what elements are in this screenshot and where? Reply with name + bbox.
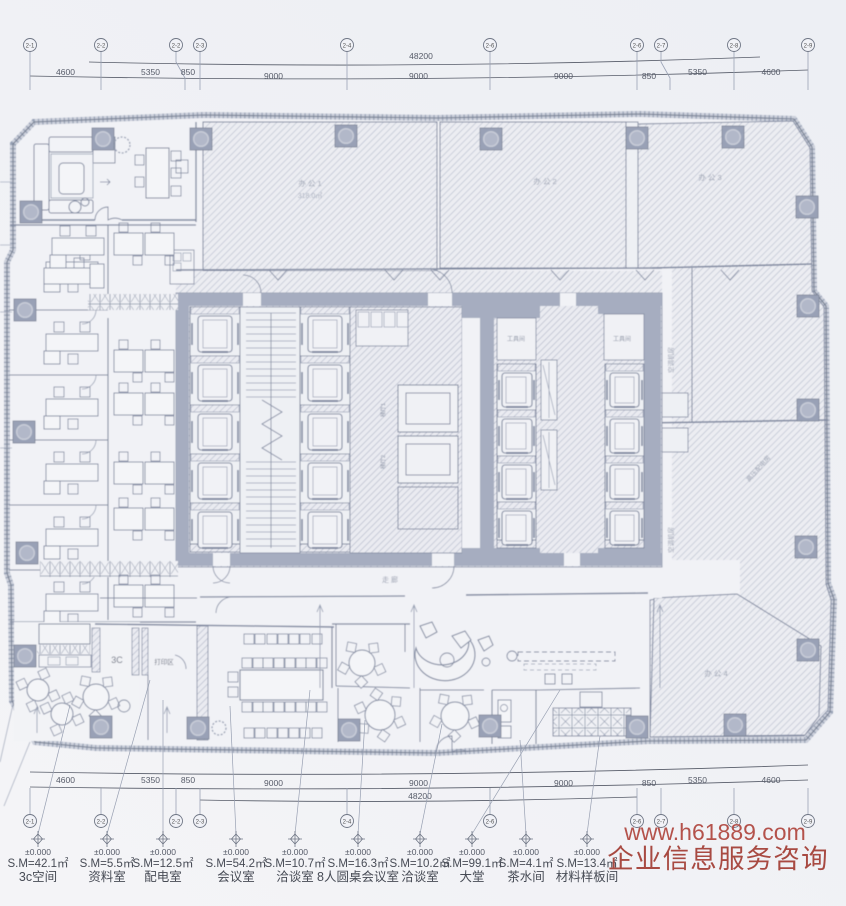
- svg-text:2-2: 2-2: [172, 44, 181, 50]
- svg-text:4600: 4600: [762, 67, 781, 77]
- svg-text:办 公 4: 办 公 4: [704, 668, 727, 678]
- svg-text:大堂: 大堂: [459, 870, 484, 884]
- svg-text:S.M=12.5㎡: S.M=12.5㎡: [132, 857, 194, 870]
- svg-text:工具间: 工具间: [507, 335, 525, 343]
- svg-text:S.M=5.5㎡: S.M=5.5㎡: [80, 857, 135, 870]
- svg-text:配电室: 配电室: [144, 869, 182, 884]
- svg-text:S.M=54.2㎡: S.M=54.2㎡: [205, 857, 267, 870]
- svg-text:±0.000: ±0.000: [513, 847, 539, 857]
- svg-text:办 公 2: 办 公 2: [533, 176, 556, 186]
- svg-text:±0.000: ±0.000: [574, 847, 600, 857]
- svg-text:8人圆桌会议室: 8人圆桌会议室: [317, 869, 399, 884]
- svg-text:企业信息服务咨询: 企业信息服务咨询: [607, 844, 829, 874]
- svg-text:9000: 9000: [554, 71, 573, 81]
- svg-text:4600: 4600: [56, 67, 75, 77]
- svg-text:850: 850: [642, 71, 656, 81]
- svg-text:办 公 3: 办 公 3: [698, 172, 721, 182]
- svg-text:S.M=42.1㎡: S.M=42.1㎡: [7, 857, 69, 870]
- svg-text:850: 850: [642, 778, 656, 788]
- svg-text:±0.000: ±0.000: [345, 847, 371, 857]
- svg-text:空调机房: 空调机房: [666, 347, 675, 373]
- svg-text:5350: 5350: [688, 67, 707, 77]
- svg-text:S.M=16.3㎡: S.M=16.3㎡: [327, 857, 389, 870]
- svg-text:梯厅2: 梯厅2: [379, 455, 387, 469]
- svg-text:2-6: 2-6: [486, 820, 495, 826]
- svg-text:±0.000: ±0.000: [459, 847, 485, 857]
- svg-text:±0.000: ±0.000: [150, 847, 176, 857]
- svg-text:洽谈室: 洽谈室: [401, 869, 439, 884]
- svg-text:4600: 4600: [56, 775, 75, 785]
- svg-text:2-3: 2-3: [196, 44, 205, 50]
- svg-text:S.M=4.1㎡: S.M=4.1㎡: [499, 857, 554, 870]
- svg-text:梯厅1: 梯厅1: [379, 403, 387, 417]
- svg-text:资料室: 资料室: [88, 869, 126, 884]
- svg-text:5350: 5350: [688, 775, 707, 785]
- svg-text:5350: 5350: [141, 775, 160, 785]
- svg-text:2-2: 2-2: [97, 820, 106, 826]
- svg-text:9000: 9000: [264, 71, 283, 81]
- svg-text:2-7: 2-7: [657, 44, 666, 50]
- svg-text:空调机房: 空调机房: [666, 527, 675, 553]
- svg-text:4600: 4600: [762, 775, 781, 785]
- svg-text:±0.000: ±0.000: [25, 847, 51, 857]
- svg-text:S.M=10.7㎡: S.M=10.7㎡: [264, 857, 326, 870]
- svg-text:www.h61889.com: www.h61889.com: [623, 819, 806, 845]
- svg-text:会议室: 会议室: [217, 869, 255, 884]
- svg-text:2-4: 2-4: [343, 820, 352, 826]
- svg-text:2-6: 2-6: [633, 44, 642, 50]
- svg-text:2-1: 2-1: [26, 820, 35, 826]
- svg-text:洽谈室: 洽谈室: [276, 869, 314, 884]
- svg-text:850: 850: [181, 67, 195, 77]
- svg-text:工具间: 工具间: [613, 335, 631, 343]
- svg-text:850: 850: [181, 775, 195, 785]
- svg-text:±0.000: ±0.000: [407, 847, 433, 857]
- svg-text:办 公 1: 办 公 1: [298, 178, 321, 188]
- svg-text:5350: 5350: [141, 67, 160, 77]
- svg-text:2-1: 2-1: [26, 44, 35, 50]
- svg-text:2-2: 2-2: [97, 44, 106, 50]
- svg-text:茶水间: 茶水间: [507, 869, 545, 884]
- svg-text:9000: 9000: [409, 778, 428, 788]
- svg-text:3c空间: 3c空间: [19, 870, 57, 884]
- svg-text:2-6: 2-6: [486, 44, 495, 50]
- svg-text:2-3: 2-3: [196, 820, 205, 826]
- svg-text:±0.000: ±0.000: [282, 847, 308, 857]
- svg-text:2-4: 2-4: [343, 44, 352, 50]
- svg-text:打印区: 打印区: [154, 657, 174, 666]
- svg-text:2-2: 2-2: [172, 820, 181, 826]
- svg-text:S.M=99.1㎡: S.M=99.1㎡: [441, 857, 503, 870]
- svg-text:2-8: 2-8: [730, 44, 739, 50]
- svg-text:3C: 3C: [111, 655, 123, 665]
- svg-text:48200: 48200: [409, 51, 433, 61]
- svg-text:9000: 9000: [554, 778, 573, 788]
- svg-text:9000: 9000: [409, 71, 428, 81]
- svg-text:9000: 9000: [264, 778, 283, 788]
- svg-text:走 廊: 走 廊: [382, 575, 398, 584]
- svg-text:±0.000: ±0.000: [94, 847, 120, 857]
- svg-text:2-9: 2-9: [804, 44, 813, 50]
- svg-text:±0.000: ±0.000: [223, 847, 249, 857]
- svg-text:318.0㎡: 318.0㎡: [298, 192, 323, 200]
